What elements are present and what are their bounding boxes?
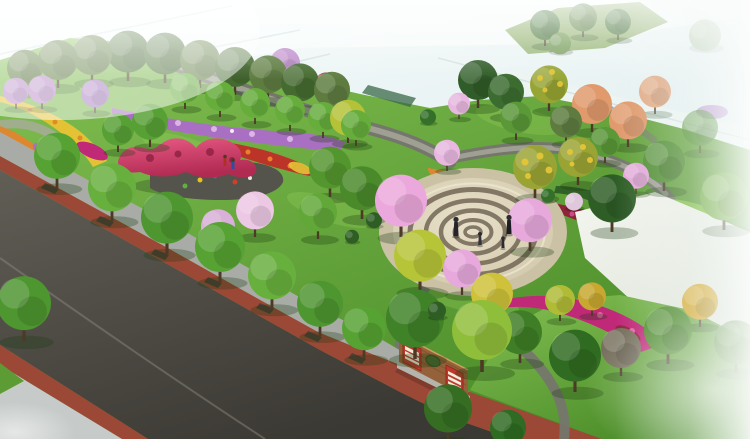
pedestrian-figure (231, 158, 234, 169)
park-rendering-image (0, 0, 750, 439)
street-tree (0, 276, 54, 349)
rendering-canvas (0, 0, 750, 439)
pedestrian-figure (223, 155, 227, 166)
